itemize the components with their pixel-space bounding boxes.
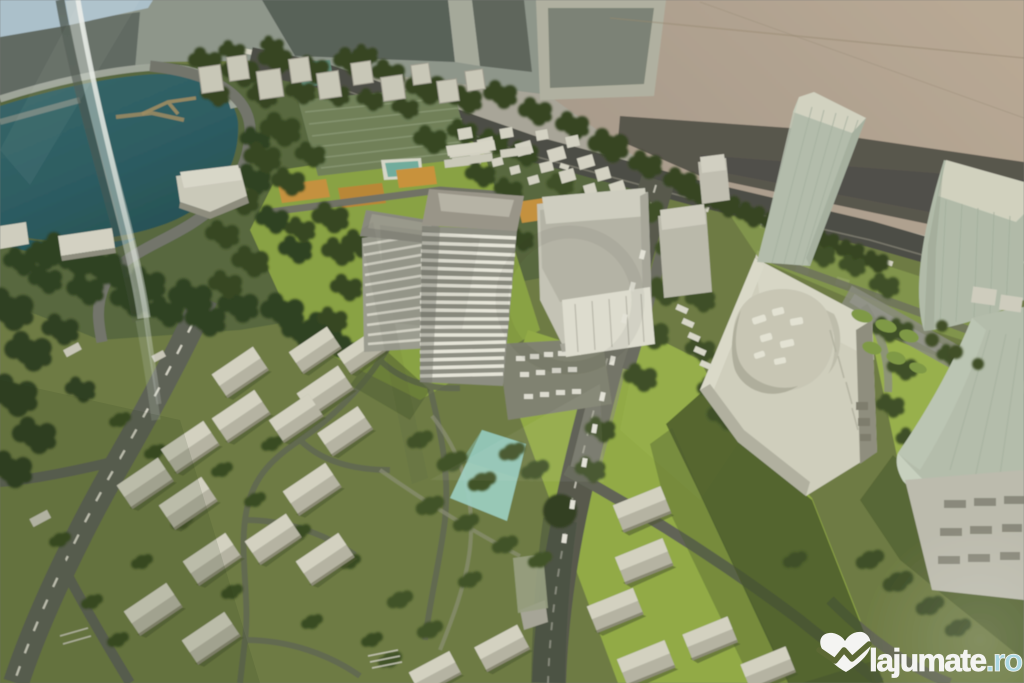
svg-text:lajumate.ro: lajumate.ro	[869, 642, 1023, 678]
